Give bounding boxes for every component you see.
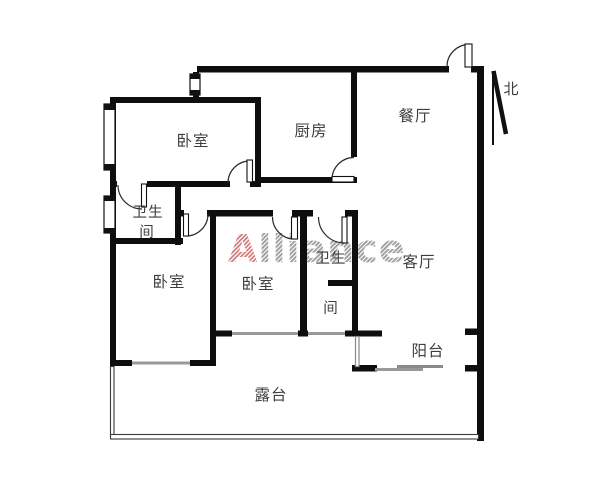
room-label-dining: 餐厅: [398, 107, 431, 125]
room-label-bathroom-inner-line2: 间: [323, 300, 339, 317]
wall-bedroom-top-right: [255, 97, 261, 187]
wall-corridor-b: [207, 210, 273, 217]
wall-right: [477, 66, 484, 441]
floor-plan-canvas: Alliance: [0, 0, 600, 503]
wall-bathroom-inner-right: [352, 213, 358, 337]
door-leaf-bedroom-left: [184, 214, 189, 236]
balcony-railing-high: [397, 365, 443, 368]
terrace-wall-bottom: [111, 435, 479, 440]
terrace-wall-left: [111, 367, 115, 437]
balcony-left-rail: [356, 337, 360, 367]
balcony-railing-low: [375, 368, 423, 371]
wall-kitchen-right: [351, 72, 357, 157]
door-leaf-bathroom-left: [142, 184, 147, 207]
wall-bathroom-inner-stub: [328, 280, 354, 286]
room-label-bedroom-top: 卧室: [176, 132, 209, 150]
wall-corridor-a: [175, 210, 184, 217]
door-leaf-bedroom-middle: [292, 217, 298, 239]
wall-bedroom-bathroom-divider: [300, 210, 307, 337]
window-bedroom-middle-south: [232, 331, 298, 337]
room-label-living: 客厅: [402, 253, 435, 271]
north-label: 北: [503, 81, 518, 98]
wall-balcony-stub-top: [465, 329, 477, 336]
wall-bedroom-middle-left: [210, 210, 216, 366]
room-label-bathroom-left-line1: 卫生: [133, 204, 164, 221]
window-bathroom-inner-south: [308, 331, 345, 337]
wall-top-main: [197, 66, 449, 73]
room-label-bathroom-left-line2: 间: [139, 224, 155, 241]
watermark-lead: A: [228, 227, 258, 271]
door-leaf-bathroom-inner: [342, 217, 347, 243]
room-label-terrace: 露台: [254, 386, 287, 404]
room-label-bathroom-inner-line1: 卫生: [316, 250, 347, 267]
room-label-kitchen: 厨房: [294, 122, 327, 140]
door-leaf-entry: [465, 44, 472, 67]
room-label-bedroom-middle: 卧室: [241, 275, 274, 293]
room-label-bedroom-left: 卧室: [152, 273, 185, 291]
window-bathroom-left: [104, 196, 115, 233]
wall-bedroom-top-bottom-b: [147, 181, 230, 187]
window-bedroom-left-south: [132, 360, 190, 366]
window-bedroom-top-left: [104, 104, 115, 170]
door-leaf-kitchen: [332, 177, 354, 183]
wall-bedroom-top: [110, 97, 261, 103]
wall-balcony-stub-bottom: [465, 365, 477, 372]
wall-bedroom-top-bottom-a: [110, 181, 117, 187]
floor-plan: Alliance: [0, 0, 600, 503]
window-top-connector: [190, 74, 200, 95]
room-label-balcony: 阳台: [411, 342, 444, 360]
door-leaf-bedroom-top: [247, 160, 253, 182]
